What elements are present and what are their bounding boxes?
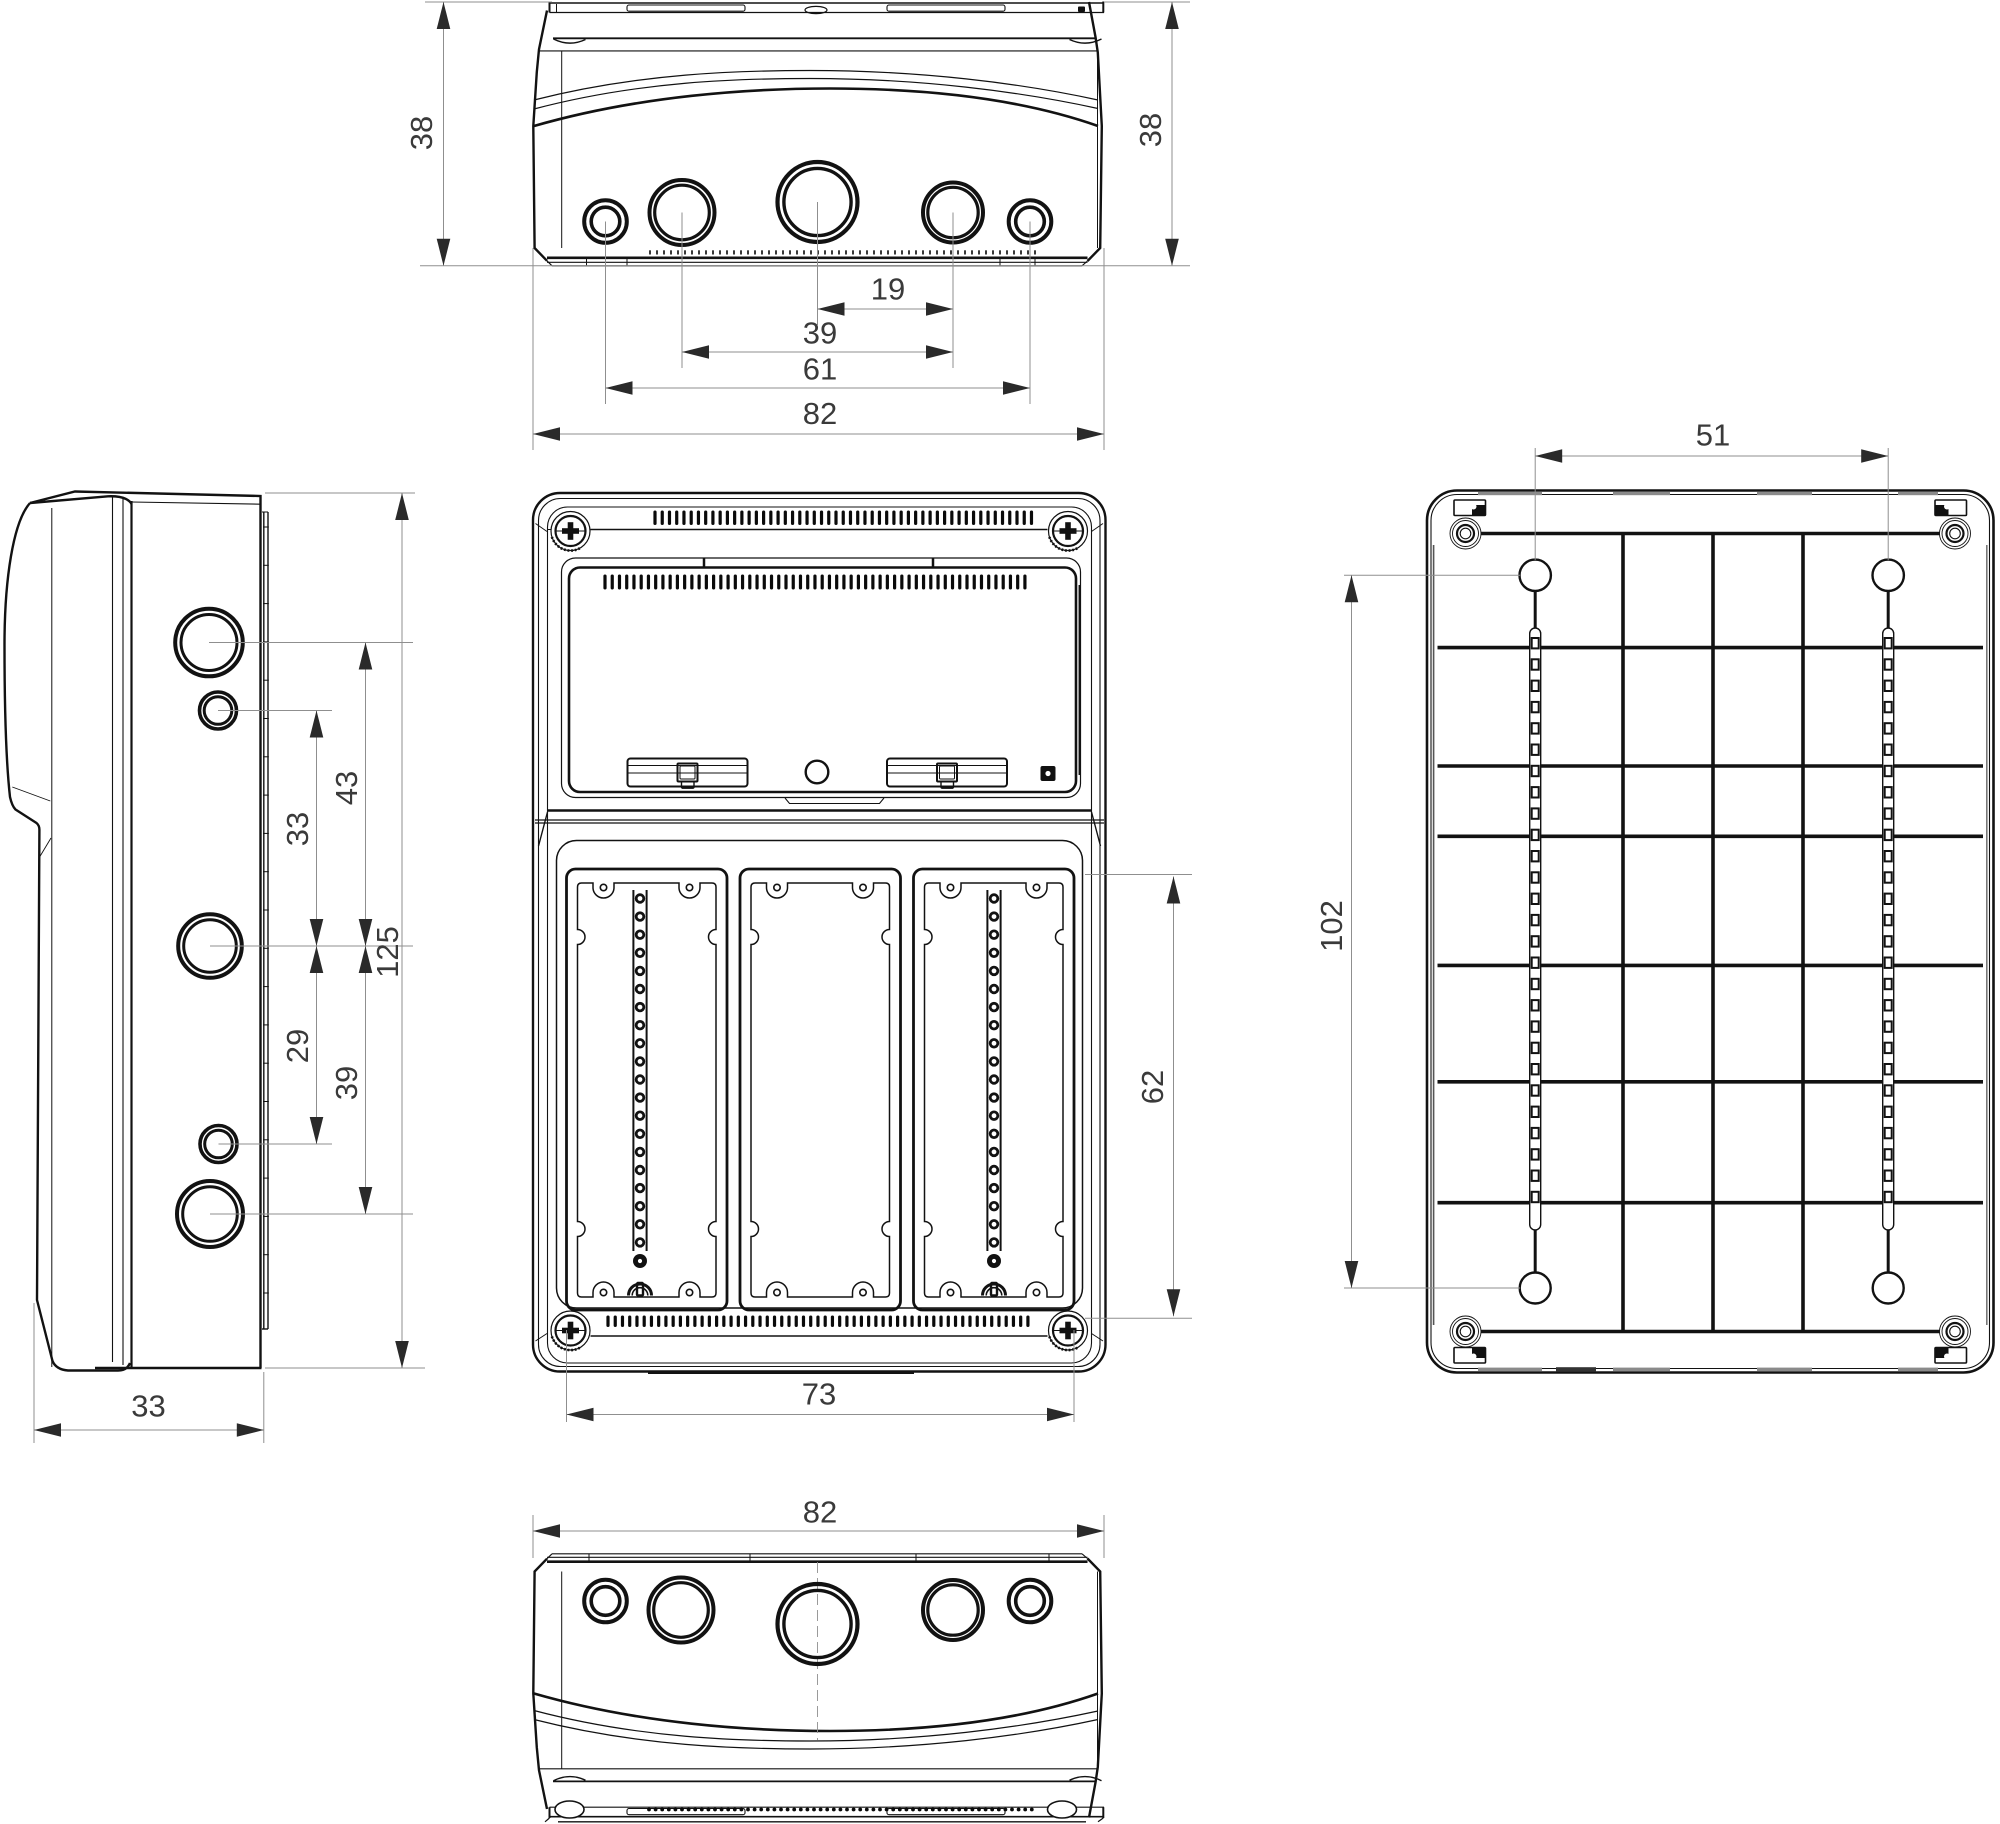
- svg-text:43: 43: [329, 771, 364, 805]
- svg-text:125: 125: [370, 926, 405, 978]
- svg-text:33: 33: [131, 1389, 165, 1424]
- svg-text:29: 29: [280, 1029, 315, 1063]
- svg-text:38: 38: [404, 116, 439, 150]
- svg-text:62: 62: [1135, 1070, 1170, 1104]
- svg-text:102: 102: [1314, 900, 1349, 952]
- svg-text:39: 39: [803, 316, 837, 351]
- svg-text:19: 19: [871, 272, 905, 307]
- svg-text:39: 39: [329, 1066, 364, 1100]
- svg-text:51: 51: [1696, 418, 1730, 453]
- svg-text:73: 73: [802, 1377, 836, 1412]
- svg-text:82: 82: [803, 396, 837, 431]
- svg-text:38: 38: [1133, 113, 1168, 147]
- svg-text:61: 61: [803, 352, 837, 387]
- svg-text:33: 33: [280, 812, 315, 846]
- svg-text:82: 82: [803, 1495, 837, 1530]
